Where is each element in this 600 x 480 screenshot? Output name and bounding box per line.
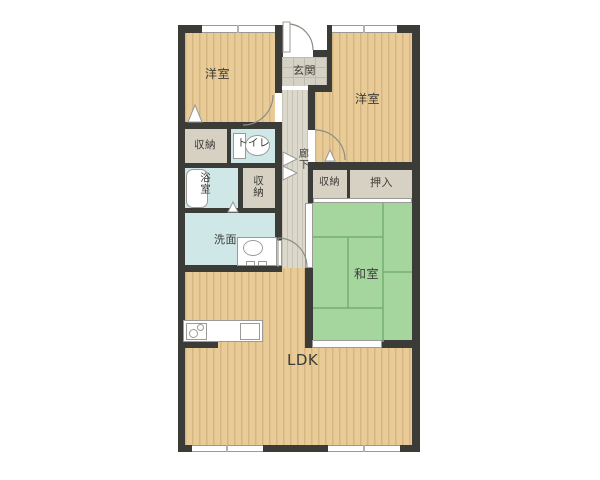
label-toilet: トイレ — [237, 138, 270, 149]
label-corridor: 廊下 — [296, 148, 307, 170]
label-storage2: 収納 — [252, 175, 263, 198]
label-storage1: 収納 — [194, 140, 216, 151]
entrance-door-arc — [290, 24, 313, 50]
label-western1: 洋室 — [205, 68, 230, 81]
entrance-door-leaf — [283, 22, 290, 52]
label-japanese: 和室 — [354, 268, 379, 281]
floor-plan: 洋室 玄関 洋室 収納 トイレ 廊下 浴室 収納 収納 押入 洗面 和室 LDK — [0, 0, 600, 480]
label-closet: 押入 — [370, 177, 393, 189]
label-washroom: 洗面 — [214, 234, 237, 246]
label-western2: 洋室 — [355, 93, 380, 106]
label-entrance: 玄関 — [293, 65, 316, 77]
ldk-door-arc — [278, 238, 307, 267]
label-bathroom: 浴室 — [199, 172, 210, 195]
label-ldk: LDK — [287, 353, 318, 369]
label-storage3: 収納 — [319, 178, 340, 189]
western1-door-arc — [243, 95, 273, 125]
